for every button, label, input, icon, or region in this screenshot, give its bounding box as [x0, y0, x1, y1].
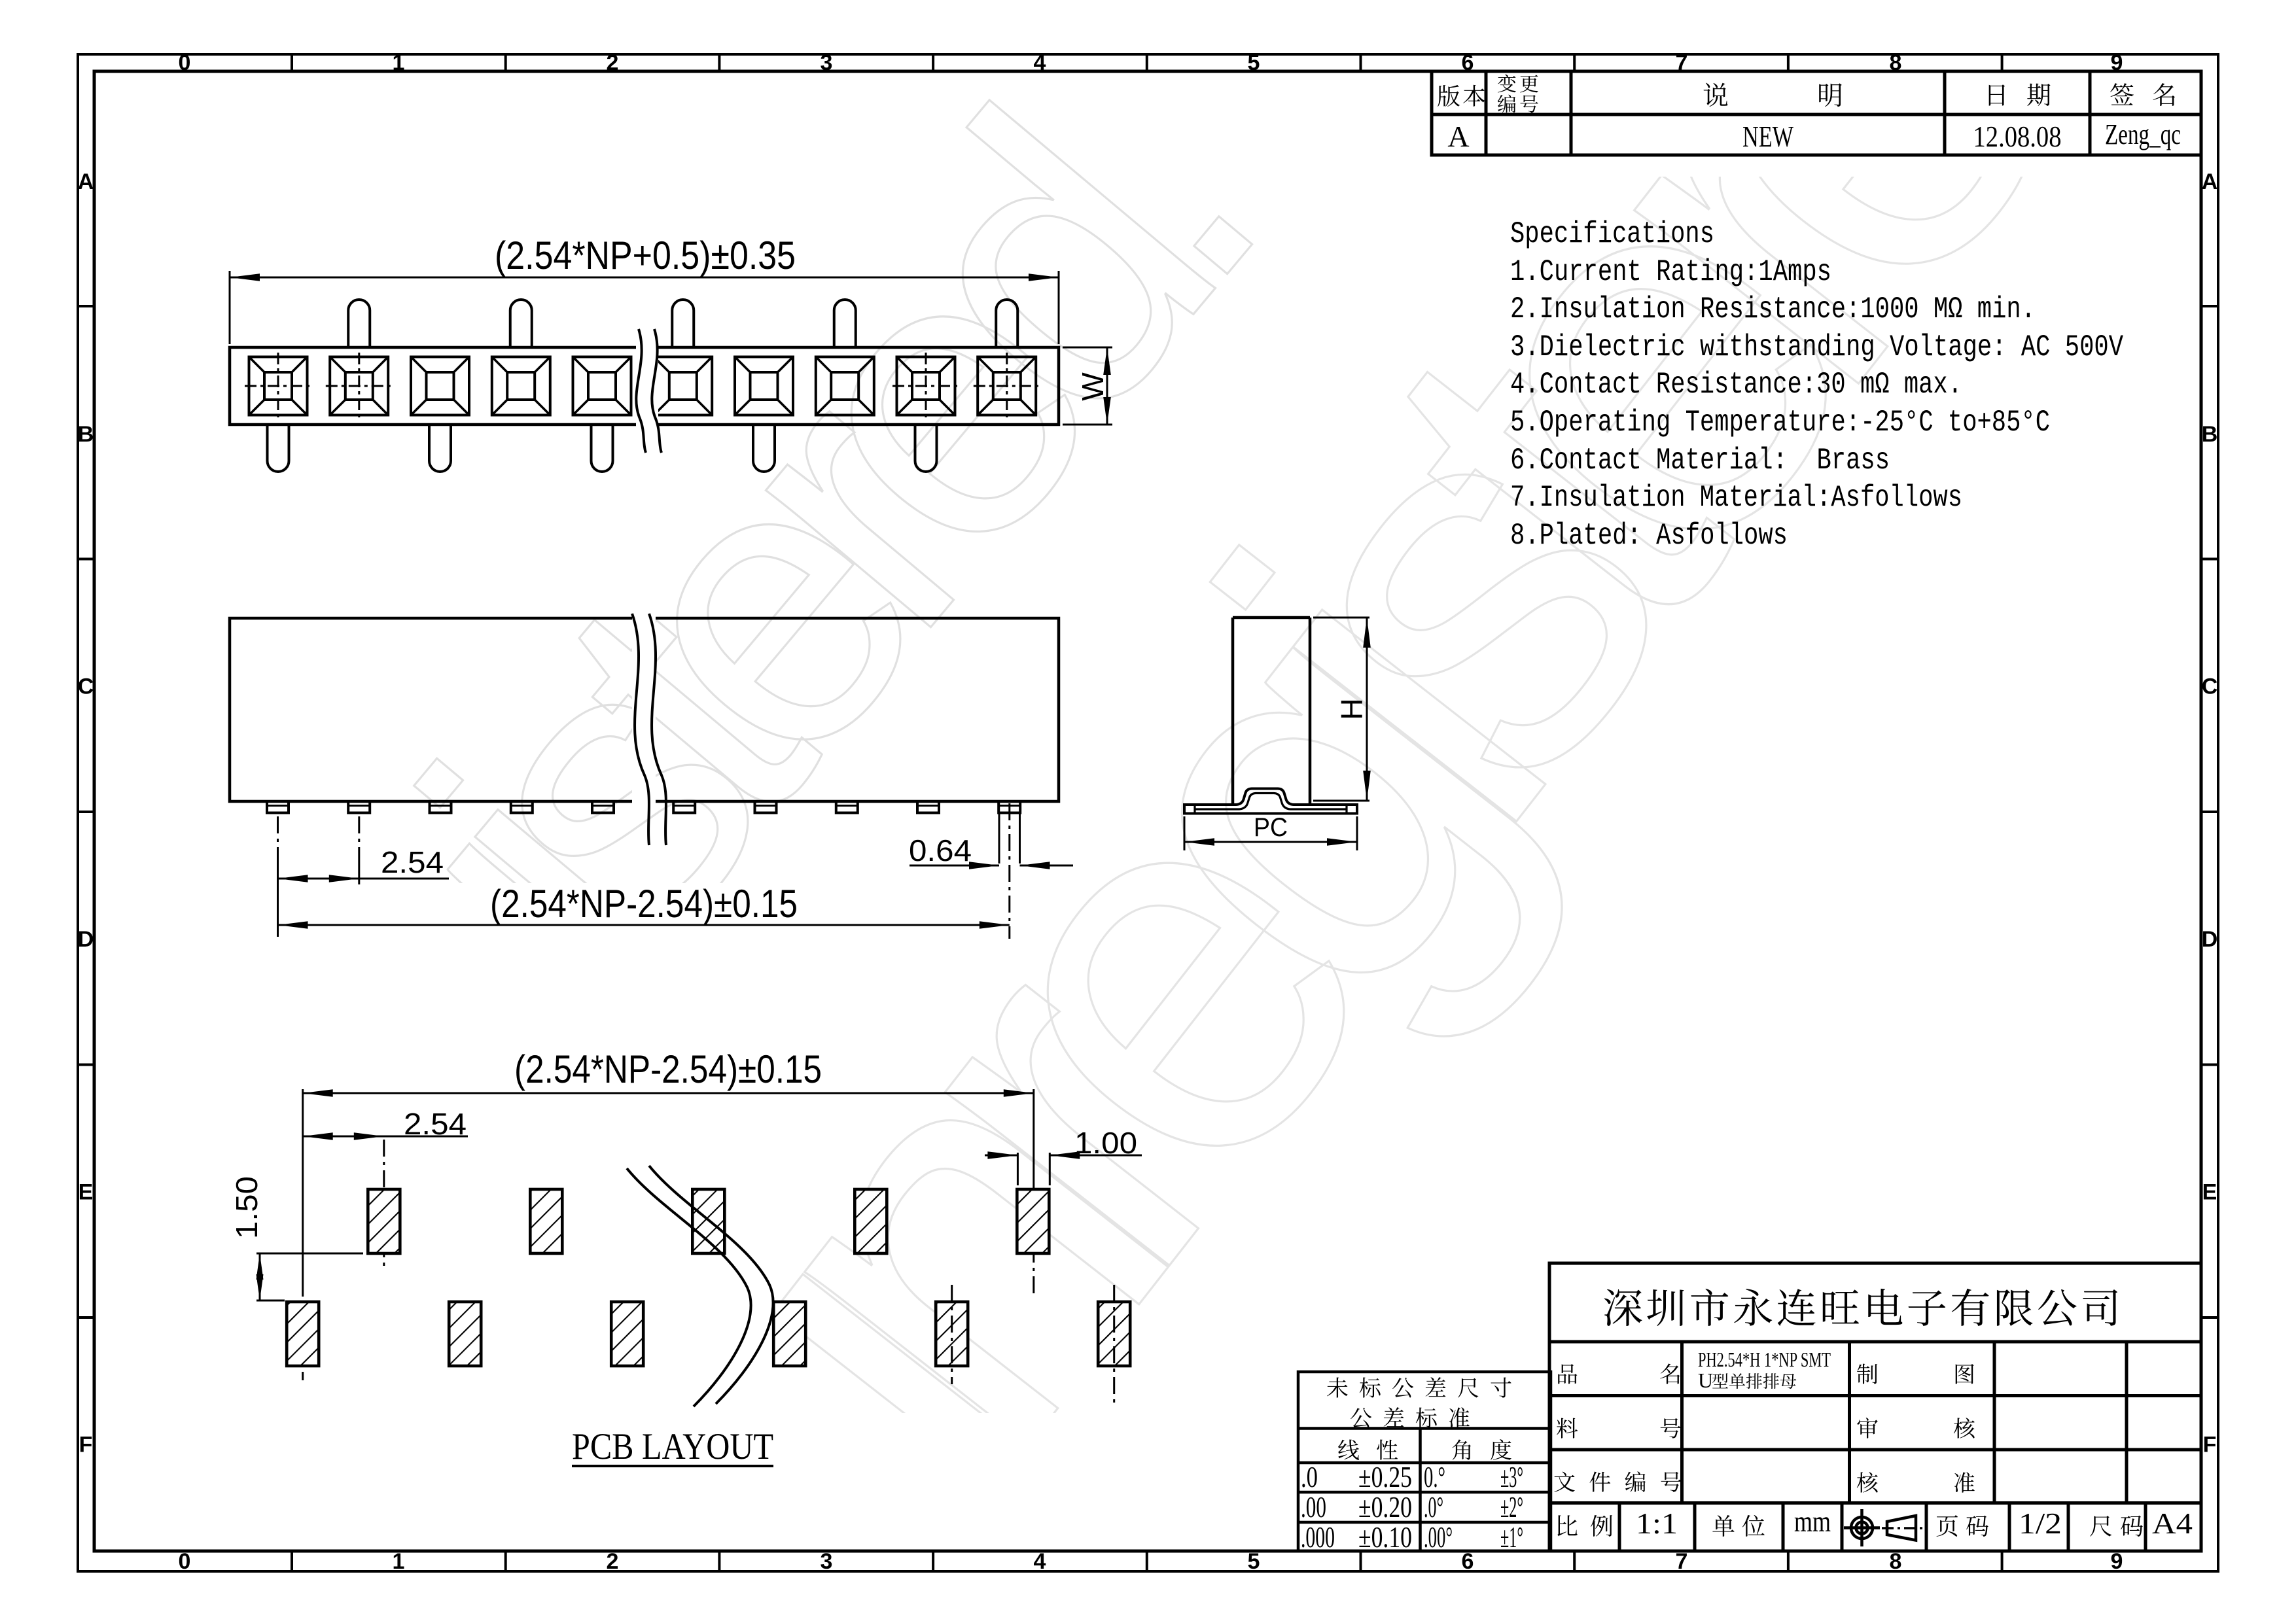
svg-text:0: 0 [179, 1549, 191, 1574]
svg-text:±0.20: ±0.20 [1358, 1490, 1412, 1524]
svg-text:7: 7 [1676, 1549, 1688, 1574]
svg-text:0: 0 [179, 50, 191, 75]
svg-text:H: H [1335, 698, 1369, 720]
svg-text:9: 9 [2111, 1549, 2123, 1574]
svg-text:.00°: .00° [1424, 1520, 1453, 1554]
svg-text:2.54: 2.54 [381, 845, 444, 879]
svg-text:.000: .000 [1301, 1520, 1335, 1554]
svg-text:0.64: 0.64 [909, 833, 972, 867]
svg-text:C: C [78, 674, 94, 699]
svg-text:Specifications: Specifications [1510, 217, 1714, 251]
svg-text:U: U [1698, 1369, 1713, 1392]
svg-text:1: 1 [393, 50, 405, 75]
svg-text:2: 2 [607, 50, 619, 75]
svg-text:A: A [2202, 169, 2218, 194]
svg-text:B: B [2202, 422, 2218, 447]
svg-text:(2.54*NP-2.54)±0.15: (2.54*NP-2.54)±0.15 [490, 882, 798, 926]
svg-text:D: D [78, 927, 94, 952]
svg-text:5.Operating Temperature:-25°C: 5.Operating Temperature:-25°C to+85°C [1510, 406, 2050, 440]
svg-text:B: B [78, 422, 94, 447]
svg-text:C: C [2202, 674, 2218, 699]
svg-text:mm: mm [1794, 1505, 1831, 1538]
svg-text:±0.10: ±0.10 [1358, 1520, 1412, 1554]
svg-text:2.54: 2.54 [404, 1107, 467, 1141]
svg-text:E: E [2202, 1180, 2217, 1205]
svg-text:.0: .0 [1301, 1460, 1318, 1493]
svg-text:(2.54*NP+0.5)±0.35: (2.54*NP+0.5)±0.35 [495, 234, 796, 277]
svg-text:.00: .00 [1301, 1490, 1326, 1524]
svg-text:1:1: 1:1 [1636, 1507, 1678, 1540]
svg-text:Zeng_qc: Zeng_qc [2105, 118, 2181, 150]
svg-text:5: 5 [1248, 1549, 1260, 1574]
svg-text:±3°: ±3° [1500, 1460, 1523, 1493]
svg-text:4: 4 [1034, 50, 1046, 75]
svg-text:A4: A4 [2152, 1507, 2193, 1540]
svg-text:12.08.08: 12.08.08 [1973, 120, 2062, 153]
svg-text:1/2: 1/2 [2019, 1507, 2062, 1540]
svg-text:±2°: ±2° [1500, 1490, 1523, 1524]
svg-text:A: A [78, 169, 94, 194]
svg-text:5: 5 [1248, 50, 1260, 75]
svg-text:D: D [2202, 927, 2218, 952]
svg-text:6: 6 [1462, 1549, 1474, 1574]
svg-text:7.Insulation Material:Asfollow: 7.Insulation Material:Asfollows [1510, 481, 1962, 515]
svg-text:6.Contact Material: Brass: 6.Contact Material: Brass [1510, 444, 1890, 478]
svg-text:4.Contact Resistance:30 mΩ max: 4.Contact Resistance:30 mΩ max. [1510, 368, 1962, 402]
svg-text:F: F [79, 1433, 93, 1457]
svg-text:3.Dielectric withstanding Volt: 3.Dielectric withstanding Voltage: AC 50… [1510, 330, 2123, 364]
svg-text:PC: PC [1254, 813, 1288, 842]
svg-text:PCB LAYOUT: PCB LAYOUT [572, 1426, 773, 1467]
svg-text:E: E [79, 1180, 94, 1205]
svg-text:3: 3 [821, 50, 833, 75]
svg-text:(2.54*NP-2.54)±0.15: (2.54*NP-2.54)±0.15 [514, 1047, 822, 1091]
svg-text:PH2.54*H 1*NP SMT: PH2.54*H 1*NP SMT [1698, 1348, 1831, 1371]
svg-text:1.50: 1.50 [230, 1176, 264, 1239]
svg-text:F: F [2203, 1433, 2217, 1457]
svg-text:0.°: 0.° [1424, 1460, 1445, 1493]
svg-text:NEW: NEW [1742, 120, 1793, 153]
svg-text:A: A [1447, 120, 1469, 153]
svg-text:2: 2 [607, 1549, 619, 1574]
svg-text:3: 3 [821, 1549, 833, 1574]
svg-text:1.00: 1.00 [1074, 1126, 1137, 1160]
svg-text:1.Current Rating:1Amps: 1.Current Rating:1Amps [1510, 255, 1831, 289]
svg-text:.0°: .0° [1424, 1490, 1443, 1524]
svg-text:±1°: ±1° [1500, 1520, 1523, 1554]
svg-text:1: 1 [393, 1549, 405, 1574]
svg-text:±0.25: ±0.25 [1358, 1460, 1412, 1493]
svg-text:W: W [1076, 372, 1110, 401]
svg-text:4: 4 [1034, 1549, 1046, 1574]
svg-text:2.Insulation Resistance:1000 M: 2.Insulation Resistance:1000 MΩ min. [1510, 292, 2036, 326]
svg-text:8.Plated: Asfollows: 8.Plated: Asfollows [1510, 519, 1788, 553]
svg-text:8: 8 [1890, 1549, 1902, 1574]
